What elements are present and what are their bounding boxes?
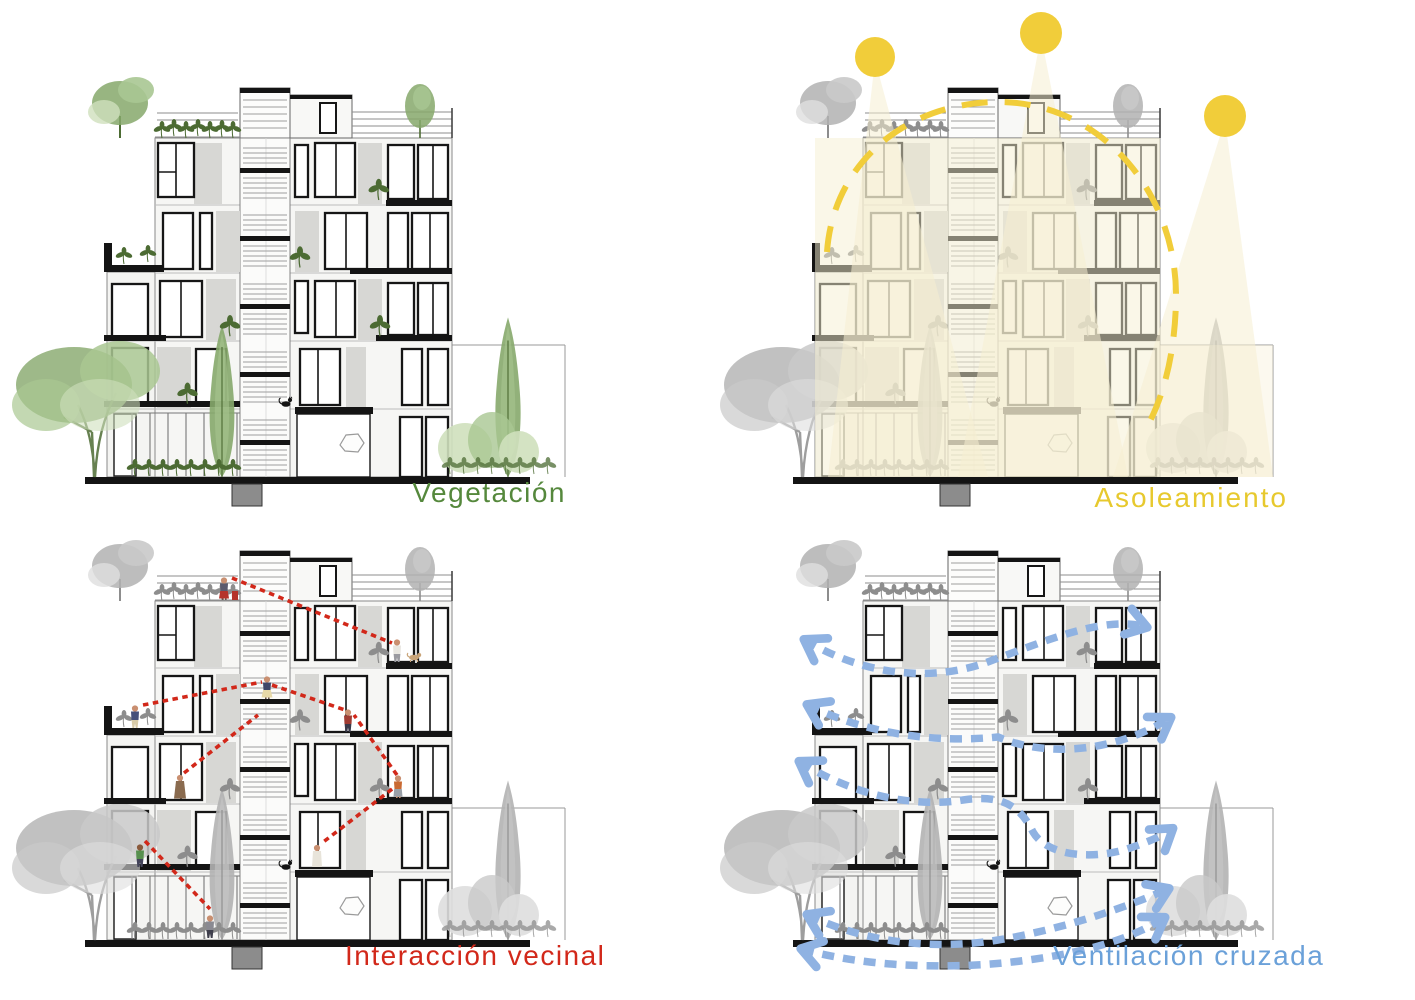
caption-vegetacion: Vegetación — [320, 477, 566, 509]
panel-ventilacion-cruzada — [708, 500, 1415, 1000]
diagram-sheet: Vegetación Asoleamiento Interacción veci… — [0, 0, 1415, 1000]
sun-icon — [855, 37, 895, 77]
building-section — [12, 77, 565, 506]
caption-asoleamiento: Asoleamiento — [1000, 482, 1288, 514]
building-section — [720, 540, 1273, 969]
caption-interaccion-vecinal: Interacción vecinal — [345, 940, 605, 972]
person-figure — [131, 705, 139, 728]
sun-icon — [1204, 95, 1246, 137]
suitcase-icon — [232, 591, 238, 600]
sun-icon — [1020, 12, 1062, 54]
building-section — [12, 540, 565, 969]
panel-vegetacion — [0, 0, 707, 500]
panel-interaccion-vecinal — [0, 500, 707, 1000]
caption-ventilacion-cruzada: Ventilación cruzada — [1053, 940, 1324, 972]
sunlight-overlay — [815, 12, 1273, 477]
panel-asoleamiento — [708, 0, 1415, 500]
